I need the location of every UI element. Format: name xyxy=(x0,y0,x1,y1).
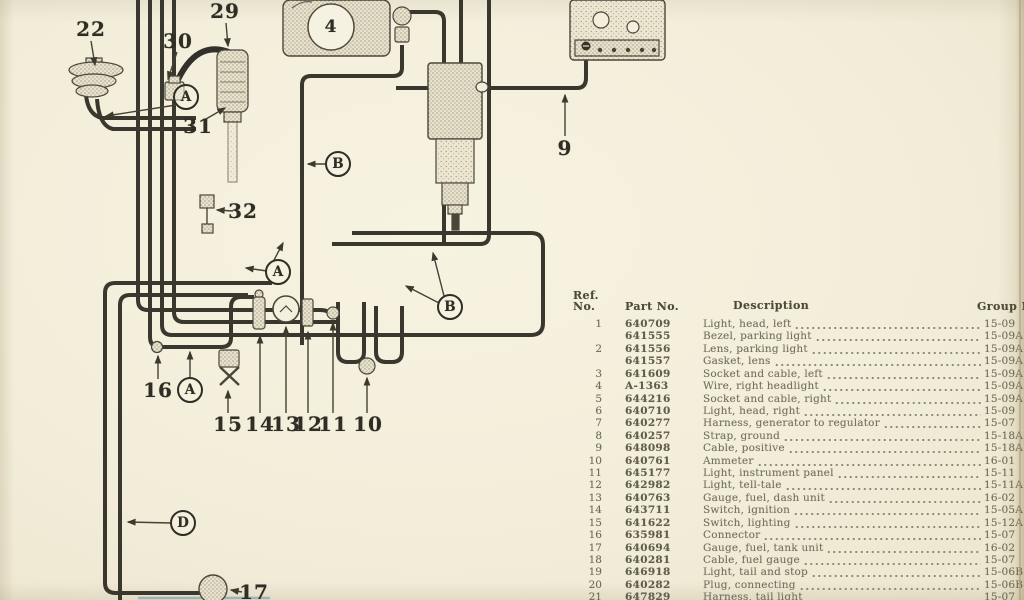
table-row: 15641622Switch, lighting15-12A xyxy=(572,517,1024,529)
cell-ref: 1 xyxy=(572,318,602,330)
dot-leader xyxy=(793,508,981,516)
cell-group: 15-09A xyxy=(984,393,1024,405)
dot-leader xyxy=(757,459,981,467)
callout-9: 9 xyxy=(558,136,573,160)
letter-A-lower: A xyxy=(177,377,203,403)
dot-leader xyxy=(826,372,981,380)
cell-desc: Light, tell-tale xyxy=(703,479,782,491)
cell-part: 640257 xyxy=(625,430,691,442)
cell-desc: Harness, generator to regulator xyxy=(703,417,880,429)
table-row: 16635981Connector15-07 xyxy=(572,529,1024,541)
letter-D: D xyxy=(170,510,196,536)
ground-connector xyxy=(200,195,214,233)
dot-leader xyxy=(794,521,981,529)
callout-29: 29 xyxy=(210,0,240,23)
cell-desc: Socket and cable, left xyxy=(703,368,823,380)
cell-group: 15-09A xyxy=(984,380,1024,392)
cell-desc: Cable, positive xyxy=(703,442,785,454)
table-row: 7640277Harness, generator to regulator15… xyxy=(572,417,1024,429)
dot-leader xyxy=(763,533,981,541)
cell-ref: 11 xyxy=(572,467,602,479)
cell-group: 15-09A xyxy=(984,368,1024,380)
dot-leader xyxy=(883,421,981,429)
suppressor-coil xyxy=(217,50,248,182)
cell-part: 640281 xyxy=(625,554,691,566)
cell-part: 646918 xyxy=(625,566,691,578)
scanned-manual-page: 2229303132491615141312111017ABABAD Ref.N… xyxy=(0,0,1024,600)
table-row: 19646918Light, tail and stop15-06B xyxy=(572,566,1024,578)
cell-part: 640282 xyxy=(625,579,691,591)
cell-part: 640709 xyxy=(625,318,691,330)
cell-desc: Light, instrument panel xyxy=(703,467,834,479)
callout-4: 4 xyxy=(325,17,338,37)
ammeter-connector xyxy=(359,358,375,374)
cell-ref: 15 xyxy=(572,517,602,529)
cell-group: 15-07 xyxy=(984,554,1024,566)
table-row: 9648098Cable, positive15-18A xyxy=(572,442,1024,454)
dot-leader xyxy=(799,583,981,591)
cell-group: 15-09A xyxy=(984,330,1024,342)
cell-group: 15-18A xyxy=(984,430,1024,442)
cell-part: 641555 xyxy=(625,330,691,342)
callout-11: 11 xyxy=(318,412,348,436)
cell-part: A-1363 xyxy=(625,380,691,392)
table-header-group: Group No. xyxy=(977,300,1024,313)
dot-leader xyxy=(803,558,981,566)
cell-part: 641556 xyxy=(625,343,691,355)
dot-leader xyxy=(811,347,981,355)
cell-desc: Light, head, right xyxy=(703,405,800,417)
cell-part: 648098 xyxy=(625,442,691,454)
cell-desc: Harness, tail light xyxy=(703,591,803,600)
cell-ref: 18 xyxy=(572,554,602,566)
cell-part: 641609 xyxy=(625,368,691,380)
cell-part: 640761 xyxy=(625,455,691,467)
cell-group: 15-09 xyxy=(984,405,1024,417)
cell-group: 15-11 xyxy=(984,467,1024,479)
letter-A-top: A xyxy=(173,84,199,110)
cell-ref: 8 xyxy=(572,430,602,442)
cell-group: 15-05A xyxy=(984,504,1024,516)
table-row: 4A-1363Wire, right headlight15-09A xyxy=(572,380,1024,392)
dot-leader xyxy=(822,384,981,392)
cell-ref: 2 xyxy=(572,343,602,355)
table-row: 3641609Socket and cable, left15-09A xyxy=(572,368,1024,380)
cell-part: 642982 xyxy=(625,479,691,491)
dot-leader xyxy=(837,471,981,479)
table-row: 21647829Harness, tail light15-07 xyxy=(572,591,1024,600)
table-row: 14643711Switch, ignition15-05A xyxy=(572,504,1024,516)
cell-ref: 9 xyxy=(572,442,602,454)
cell-ref: 21 xyxy=(572,591,602,600)
table-row: 8640257Strap, ground15-18A xyxy=(572,430,1024,442)
cell-ref: 17 xyxy=(572,542,602,554)
letter-B-top: B xyxy=(325,151,351,177)
cell-desc: Bezel, parking light xyxy=(703,330,812,342)
cell-desc: Gauge, fuel, dash unit xyxy=(703,492,825,504)
callout-30: 30 xyxy=(163,29,193,53)
cell-ref: 7 xyxy=(572,417,602,429)
cell-part: 643711 xyxy=(625,504,691,516)
cell-group: 15-07 xyxy=(984,529,1024,541)
connector-16 xyxy=(152,342,163,353)
voltage-regulator xyxy=(570,0,665,60)
cell-part: 647829 xyxy=(625,591,691,600)
table-row: 641557Gasket, lens15-09A xyxy=(572,355,1024,367)
cell-group: 15-07 xyxy=(984,417,1024,429)
cell-desc: Plug, connecting xyxy=(703,579,796,591)
table-row: 11645177Light, instrument panel15-11 xyxy=(572,467,1024,479)
dot-leader xyxy=(815,334,981,342)
fuel-tank-unit xyxy=(199,575,227,600)
cell-group: 15-09A xyxy=(984,343,1024,355)
cell-ref: 3 xyxy=(572,368,602,380)
cell-ref: 13 xyxy=(572,492,602,504)
table-row: 6640710Light, head, right15-09 xyxy=(572,405,1024,417)
dot-leader xyxy=(806,595,981,600)
horn xyxy=(69,58,123,97)
ignition-switch xyxy=(253,290,265,329)
table-row: 13640763Gauge, fuel, dash unit16-02 xyxy=(572,492,1024,504)
table-header-description: Description xyxy=(733,299,809,312)
cell-desc: Ammeter xyxy=(703,455,754,467)
table-row: 17640694Gauge, fuel, tank unit16-02 xyxy=(572,542,1024,554)
cell-ref: 10 xyxy=(572,455,602,467)
cell-ref: 6 xyxy=(572,405,602,417)
cell-ref: 14 xyxy=(572,504,602,516)
cell-group: 15-12A xyxy=(984,517,1024,529)
table-row: 5644216Socket and cable, right15-09A xyxy=(572,393,1024,405)
wire-harness xyxy=(86,0,586,600)
lighting-switch xyxy=(219,350,239,385)
cell-part: 640277 xyxy=(625,417,691,429)
callout-31: 31 xyxy=(183,114,213,138)
panel-light-connector xyxy=(327,307,339,319)
table-row: 10640761Ammeter16-01 xyxy=(572,455,1024,467)
cell-part: 641622 xyxy=(625,517,691,529)
cell-desc: Gauge, fuel, tank unit xyxy=(703,542,823,554)
cell-group: 15-09A xyxy=(984,355,1024,367)
headlight-wire-1 xyxy=(302,45,402,345)
cell-desc: Wire, right headlight xyxy=(703,380,819,392)
cell-desc: Light, head, left xyxy=(703,318,791,330)
table-row: 2641556Lens, parking light15-09A xyxy=(572,343,1024,355)
dot-leader xyxy=(788,446,981,454)
dot-leader xyxy=(803,409,981,417)
dot-leader xyxy=(811,570,981,578)
cell-group: 15-06B xyxy=(984,579,1024,591)
cell-desc: Gasket, lens xyxy=(703,355,771,367)
cell-group: 16-02 xyxy=(984,492,1024,504)
letter-B-middle: B xyxy=(437,294,463,320)
cell-part: 635981 xyxy=(625,529,691,541)
page-edge-shadow xyxy=(1019,0,1021,600)
cell-group: 15-11A xyxy=(984,479,1024,491)
callout-16: 16 xyxy=(143,378,173,402)
cell-part: 645177 xyxy=(625,467,691,479)
callout-32: 32 xyxy=(228,199,258,223)
table-row: 20640282Plug, connecting15-06B xyxy=(572,579,1024,591)
cell-part: 641557 xyxy=(625,355,691,367)
table-header-part: Part No. xyxy=(625,300,679,313)
cell-ref: 5 xyxy=(572,393,602,405)
cell-ref: 20 xyxy=(572,579,602,591)
cell-desc: Lens, parking light xyxy=(703,343,808,355)
dot-leader xyxy=(794,322,981,330)
fuel-dash-gauge xyxy=(273,296,299,322)
cell-part: 640694 xyxy=(625,542,691,554)
table-header-ref_line2: No. xyxy=(573,300,595,313)
dot-leader xyxy=(785,483,981,491)
table-row: 18640281Cable, fuel gauge15-07 xyxy=(572,554,1024,566)
letter-A-middle: A xyxy=(265,259,291,285)
callout-17: 17 xyxy=(239,580,269,600)
cell-part: 644216 xyxy=(625,393,691,405)
ignition-coil xyxy=(428,63,488,230)
cell-group: 16-01 xyxy=(984,455,1024,467)
cell-ref: 4 xyxy=(572,380,602,392)
cell-desc: Switch, lighting xyxy=(703,517,791,529)
callout-10: 10 xyxy=(353,412,383,436)
dot-leader xyxy=(774,359,981,367)
telltale-light xyxy=(302,299,313,326)
cell-group: 15-18A xyxy=(984,442,1024,454)
cell-group: 15-06B xyxy=(984,566,1024,578)
dot-leader xyxy=(828,496,981,504)
cell-desc: Cable, fuel gauge xyxy=(703,554,800,566)
u-loop-1 xyxy=(338,302,364,362)
table-row: 641555Bezel, parking light15-09A xyxy=(572,330,1024,342)
headlight-connector xyxy=(393,7,411,42)
cell-desc: Switch, ignition xyxy=(703,504,790,516)
table-row: 12642982Light, tell-tale15-11A xyxy=(572,479,1024,491)
cell-desc: Connector xyxy=(703,529,760,541)
cell-desc: Socket and cable, right xyxy=(703,393,831,405)
cell-group: 15-07 xyxy=(984,591,1024,600)
cell-group: 15-09 xyxy=(984,318,1024,330)
dot-leader xyxy=(834,397,981,405)
cell-desc: Light, tail and stop xyxy=(703,566,808,578)
cell-desc: Strap, ground xyxy=(703,430,780,442)
dot-leader xyxy=(826,546,981,554)
cell-part: 640710 xyxy=(625,405,691,417)
left-wire-1 xyxy=(105,283,272,593)
cell-ref: 16 xyxy=(572,529,602,541)
callout-22: 22 xyxy=(76,17,106,41)
cell-part: 640763 xyxy=(625,492,691,504)
cell-group: 16-02 xyxy=(984,542,1024,554)
cell-ref: 19 xyxy=(572,566,602,578)
table-row: 1640709Light, head, left15-09 xyxy=(572,318,1024,330)
dot-leader xyxy=(783,434,981,442)
cell-ref: 12 xyxy=(572,479,602,491)
callout-15: 15 xyxy=(213,412,243,436)
